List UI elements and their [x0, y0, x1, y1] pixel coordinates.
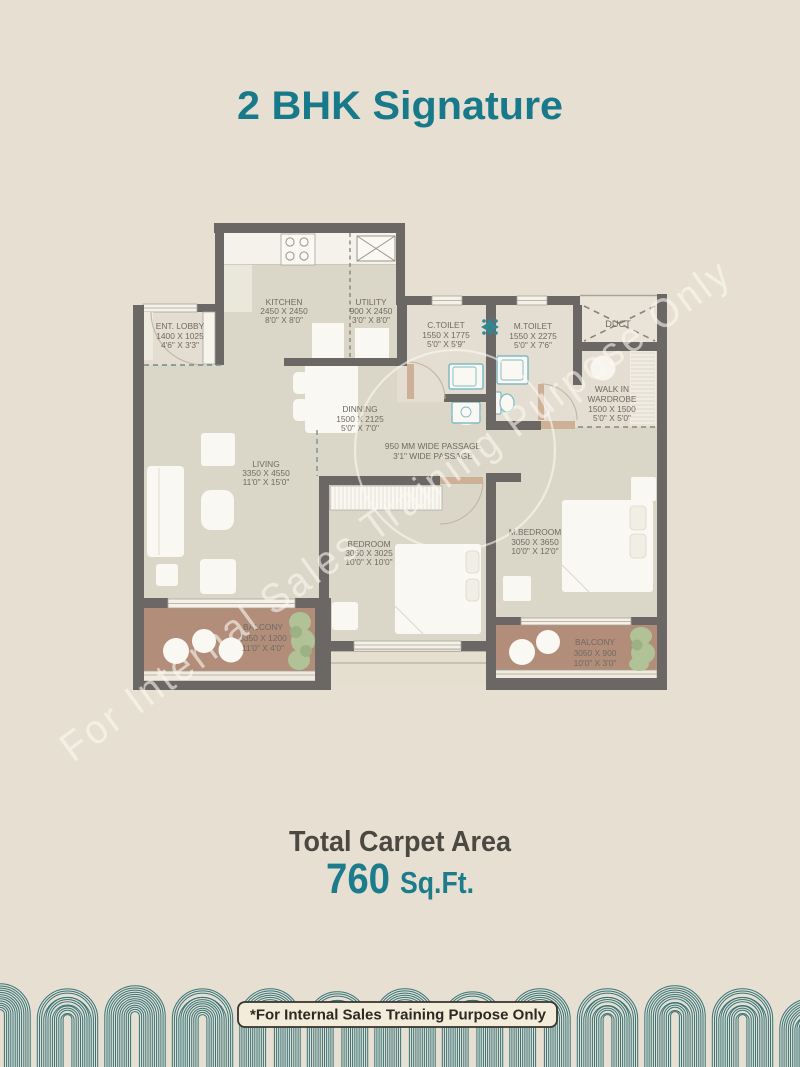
svg-text:ENT. LOBBY1400 X 10254'6" X 3': ENT. LOBBY1400 X 10254'6" X 3'3": [156, 321, 205, 350]
svg-text:BALCONY3050 X 90010'0" X 3'0": BALCONY3050 X 90010'0" X 3'0": [574, 637, 617, 668]
svg-text:2 BHK Signature: 2 BHK Signature: [237, 84, 563, 128]
svg-text:UTILITY900 X 24503'0" X 8'0": UTILITY900 X 24503'0" X 8'0": [350, 297, 393, 325]
svg-text:M.TOILET1550 X 22755'0" X 7'6": M.TOILET1550 X 22755'0" X 7'6": [509, 321, 557, 350]
svg-text:KITCHEN2450 X 24508'0" X 8'0": KITCHEN2450 X 24508'0" X 8'0": [260, 297, 308, 325]
svg-text:*For Internal Sales Training P: *For Internal Sales Training Purpose Onl…: [250, 1008, 546, 1024]
svg-text:Sq.Ft.: Sq.Ft.: [400, 865, 474, 900]
svg-text:M.BEDROOM3050 X 365010'0" X 12: M.BEDROOM3050 X 365010'0" X 12'0": [509, 527, 562, 556]
svg-text:760: 760: [326, 855, 390, 903]
svg-text:Total Carpet Area: Total Carpet Area: [289, 826, 512, 858]
svg-text:C.TOILET1550 X 17755'0" X 5'9": C.TOILET1550 X 17755'0" X 5'9": [422, 320, 470, 349]
